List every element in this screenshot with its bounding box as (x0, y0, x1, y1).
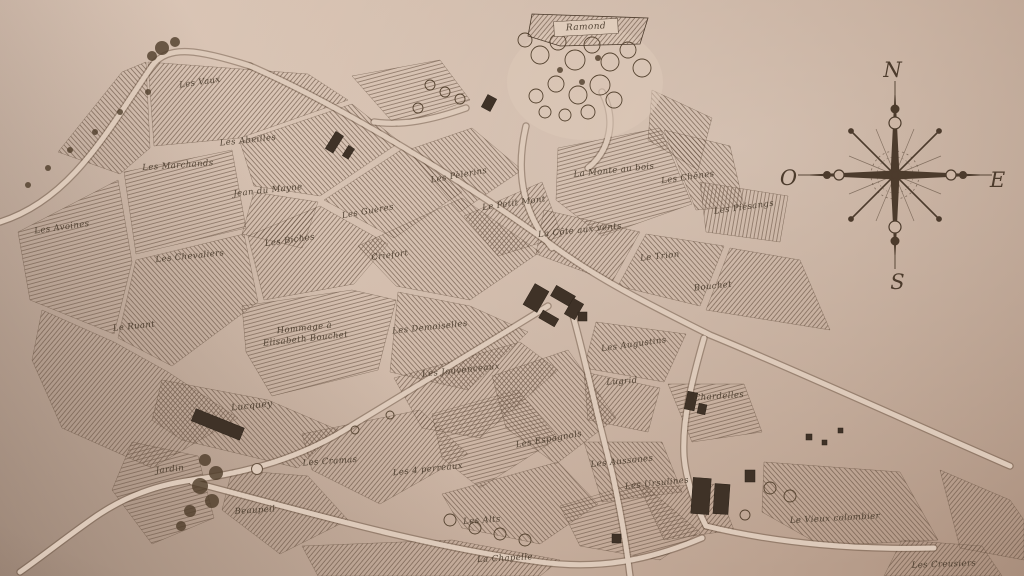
parcel-label: Les Abeilles (219, 133, 277, 149)
parcel-label: Chardelles (693, 390, 744, 404)
parcel-label: Ramond (566, 21, 607, 34)
parcel-label: Les Ursulines (624, 475, 689, 492)
parcel-labels-layer: RamondLes VauxLes AbeillesLes MarchandsJ… (0, 0, 1024, 576)
parcel-label: La Chapelle (477, 552, 533, 566)
parcel-label: Lugrid (606, 376, 638, 389)
parcel-label: Jardin (155, 463, 185, 477)
compass-east-label: E (990, 168, 1006, 192)
parcel-label: Les Avoines (34, 219, 90, 237)
parcel-label: Les Chevaliers (155, 248, 225, 266)
compass-west-label: O (780, 166, 798, 190)
parcel-label: Les Guères (341, 202, 395, 222)
map-photo: RamondLes VauxLes AbeillesLes MarchandsJ… (0, 0, 1024, 576)
parcel-label: Les Demoiselles (392, 319, 468, 337)
parcel-label: Les Espagnols (515, 429, 583, 451)
parcel-label: Les Creusiers (912, 559, 977, 572)
parcel-label: Criefort (371, 248, 409, 264)
parcel-label: Les Pèlerins (430, 166, 488, 186)
parcel-label: Les Augustins (601, 335, 668, 355)
compass-south-label: S (890, 270, 905, 294)
parcel-label: Hommage à Elisabeth Bouchet (261, 319, 348, 349)
parcel-label: Les Jouvenceaux (422, 362, 501, 381)
parcel-label: Les Marchands (142, 158, 214, 174)
parcel-label: Les Vaux (179, 75, 222, 91)
parcel-label: Beaupeil (234, 504, 276, 517)
parcel-label: Les Alts (463, 514, 501, 527)
parcel-label: Les Biches (264, 232, 315, 250)
parcel-label: Les Cramas (302, 455, 357, 469)
parcel-label: Le Ruant (112, 319, 155, 334)
parcel-label: Les Piésangs (713, 199, 775, 218)
parcel-label: Le Trion (640, 250, 681, 265)
parcel-label: Les 4 perreaux (392, 461, 463, 479)
parcel-label: La Monte au bois (573, 161, 655, 180)
parcel-label: Le Vieux colombier (790, 511, 881, 526)
parcel-label: Lucquey (231, 399, 274, 415)
parcel-label: Les Aussones (590, 453, 654, 470)
parcel-label: Jean du Mayne (233, 182, 303, 200)
parcel-label: Les Chênes (661, 169, 716, 187)
parcel-label: La Côte aux vents (538, 221, 623, 240)
parcel-label: Bouchet (693, 280, 732, 295)
parcel-label: Le Petit Mont (482, 194, 547, 213)
compass-north-label: N (883, 58, 902, 82)
